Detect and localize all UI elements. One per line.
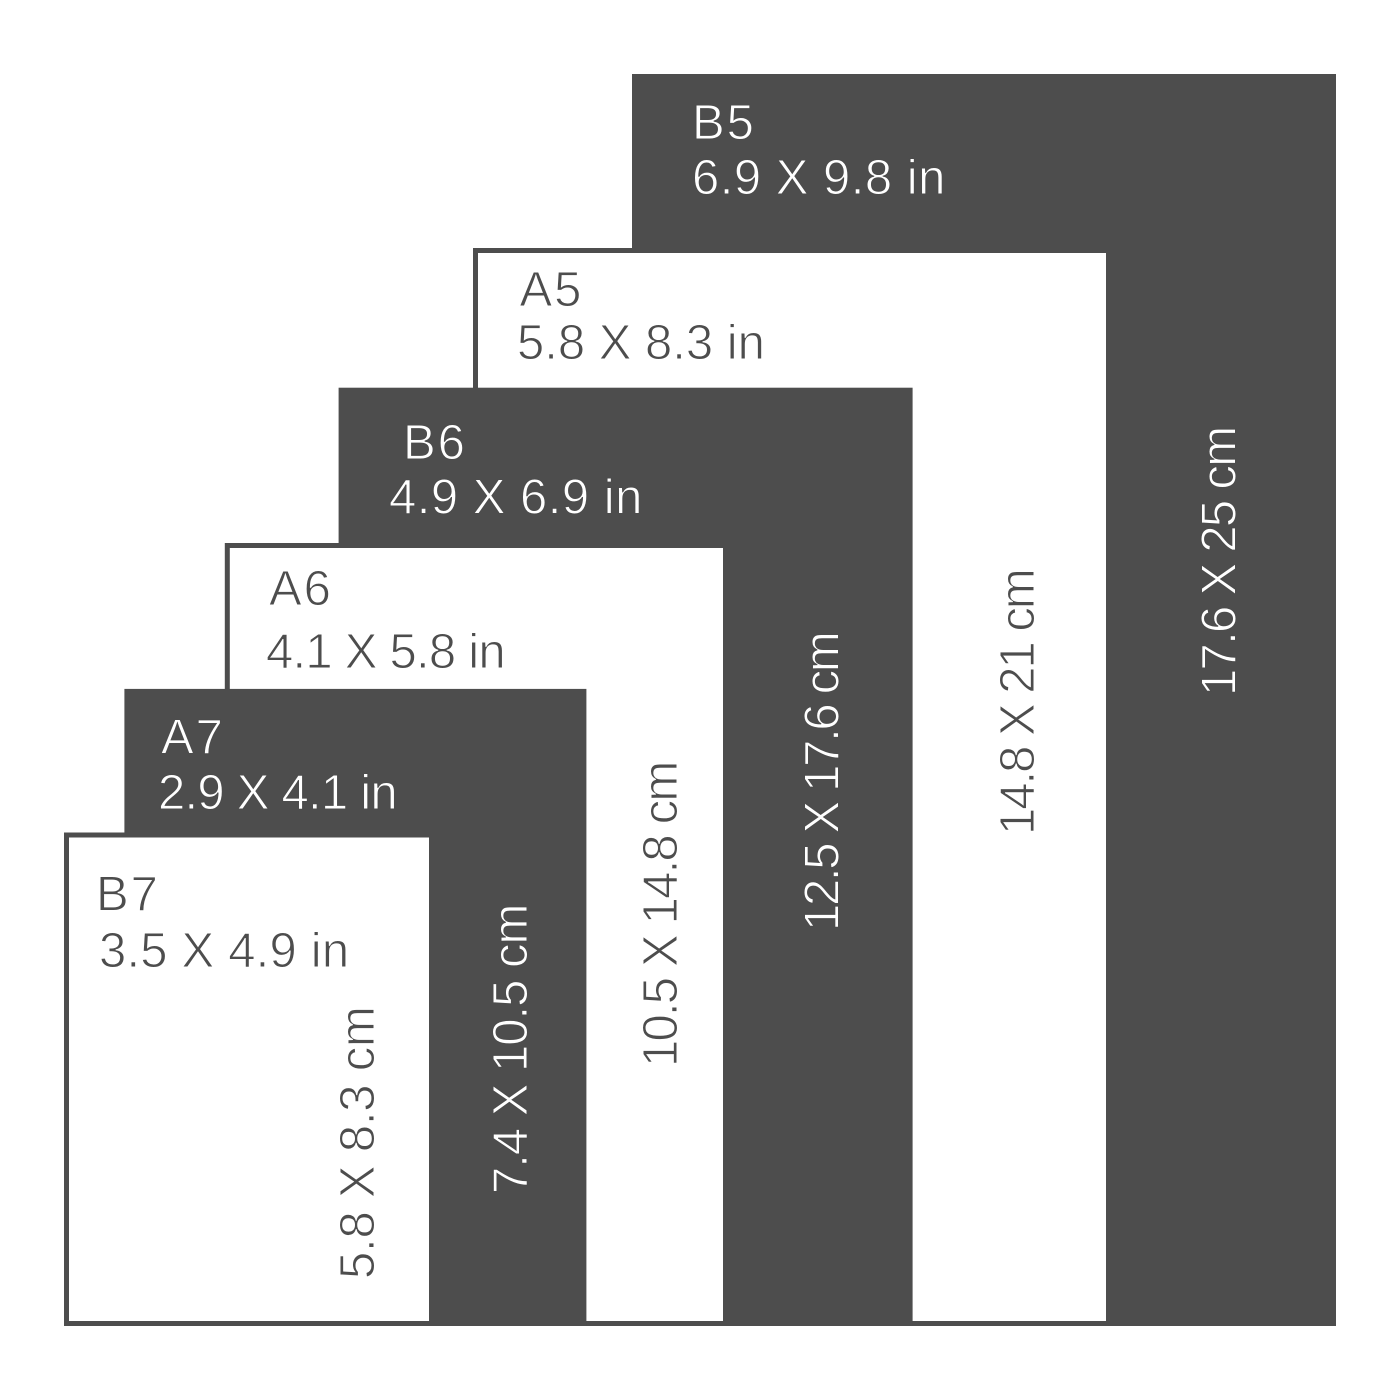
svg-text:5.8 X 8.3 cm: 5.8 X 8.3 cm (331, 1006, 385, 1279)
svg-text:A5: A5 (520, 263, 584, 317)
svg-text:4.9 X 6.9 in: 4.9 X 6.9 in (389, 471, 643, 525)
svg-text:A6: A6 (269, 562, 333, 616)
svg-text:B7: B7 (96, 868, 160, 922)
svg-text:2.9 X 4.1 in: 2.9 X 4.1 in (158, 766, 397, 820)
svg-text:17.6 X 25 cm: 17.6 X 25 cm (1193, 428, 1247, 696)
svg-text:7.4 X 10.5 cm: 7.4 X 10.5 cm (484, 905, 538, 1194)
svg-text:5.8 X 8.3 in: 5.8 X 8.3 in (517, 316, 765, 370)
svg-text:6.9 X 9.8 in: 6.9 X 9.8 in (692, 151, 946, 205)
svg-text:B5: B5 (692, 96, 756, 150)
svg-text:A7: A7 (161, 711, 225, 765)
svg-text:B6: B6 (403, 416, 467, 470)
svg-text:3.5 X 4.9 in: 3.5 X 4.9 in (99, 924, 349, 978)
svg-text:14.8 X 21 cm: 14.8 X 21 cm (991, 570, 1045, 835)
svg-text:12.5 X 17.6 cm: 12.5 X 17.6 cm (796, 634, 850, 931)
svg-text:10.5 X 14.8 cm: 10.5 X 14.8 cm (634, 763, 688, 1067)
svg-text:4.1 X 5.8 in: 4.1 X 5.8 in (266, 625, 505, 679)
